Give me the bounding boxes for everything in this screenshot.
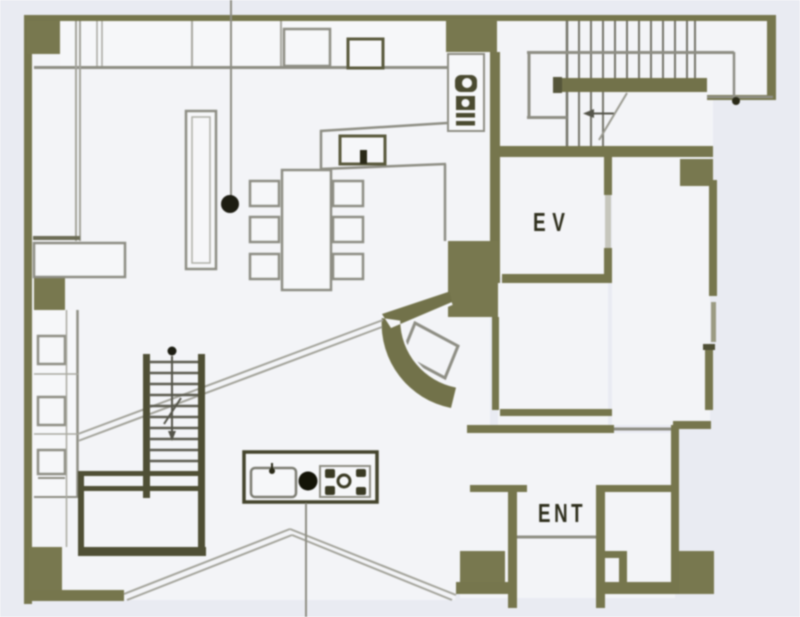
svg-text:EV: EV — [533, 207, 571, 237]
svg-text:ENT: ENT — [538, 498, 586, 528]
